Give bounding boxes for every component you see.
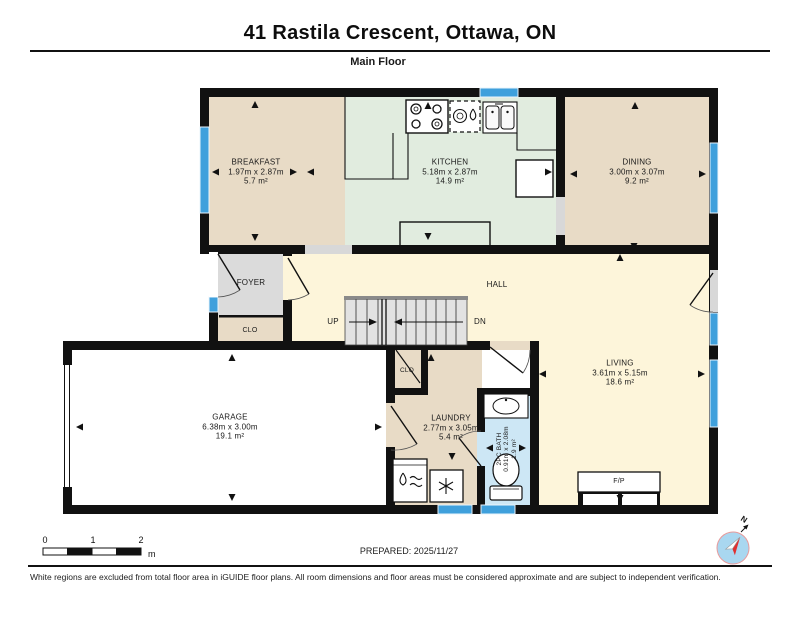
footer-divider bbox=[28, 565, 772, 567]
fireplace-label: F/P bbox=[613, 478, 625, 486]
room-name: DINING bbox=[609, 158, 665, 168]
room-name: LIVING bbox=[592, 359, 648, 369]
footer-disclaimer: White regions are excluded from total fl… bbox=[30, 572, 721, 582]
kitchen-dining-opening bbox=[556, 197, 565, 235]
prepared-date: PREPARED: 2025/11/27 bbox=[360, 546, 458, 556]
room-label-foyer: FOYER bbox=[237, 278, 266, 288]
room-label-foyer-closet: CLO bbox=[243, 327, 258, 335]
room-name: 2PC BATH bbox=[496, 426, 503, 472]
room-dims: 1.97m x 2.87m bbox=[228, 167, 284, 177]
room-name: GARAGE bbox=[202, 413, 258, 423]
dining-window bbox=[710, 143, 718, 213]
room-dims: 5.18m x 2.87m bbox=[422, 167, 478, 177]
room-area: 9.2 m² bbox=[609, 177, 665, 187]
compass-icon bbox=[711, 525, 755, 571]
garage-door bbox=[62, 365, 73, 487]
room-area: 14.9 m² bbox=[422, 177, 478, 187]
room-area: 1.9 m² bbox=[511, 426, 518, 472]
floorplan-page: 41 Rastila Crescent, Ottawa, ON Main Flo… bbox=[0, 0, 800, 618]
kitchen-hall-opening bbox=[305, 245, 352, 254]
double-sink-icon bbox=[483, 102, 517, 133]
room-label-living: LIVING 3.61m x 5.15m 18.6 m² bbox=[592, 359, 648, 388]
room-label-breakfast: BREAKFAST 1.97m x 2.87m 5.7 m² bbox=[228, 158, 284, 187]
scale-tick-0: 0 bbox=[42, 535, 47, 545]
room-label-dining: DINING 3.00m x 3.07m 9.2 m² bbox=[609, 158, 665, 187]
breakfast-window bbox=[200, 127, 209, 213]
scale-tick-2: 2 bbox=[138, 535, 143, 545]
bath-window bbox=[481, 505, 515, 514]
stairs bbox=[344, 296, 468, 345]
stairs-down-label: DN bbox=[474, 317, 486, 327]
kitchen-window bbox=[480, 88, 518, 97]
dryer-icon bbox=[430, 470, 463, 502]
room-dims: 6.38m x 3.00m bbox=[202, 422, 258, 432]
floorplan-svg bbox=[0, 0, 800, 618]
washer-icon bbox=[393, 459, 427, 502]
living-window-lower bbox=[710, 360, 718, 427]
room-label-kitchen: KITCHEN 5.18m x 2.87m 14.9 m² bbox=[422, 158, 478, 187]
room-area: 5.7 m² bbox=[228, 177, 284, 187]
dishwasher-icon bbox=[450, 101, 480, 132]
room-dims: 3.61m x 5.15m bbox=[592, 368, 648, 378]
room-label-hall: HALL bbox=[487, 280, 508, 290]
living-window-upper bbox=[710, 313, 718, 345]
room-name: BREAKFAST bbox=[228, 158, 284, 168]
foyer-window bbox=[209, 297, 218, 312]
scale-unit: m bbox=[148, 549, 156, 559]
hall-laundry-door bbox=[490, 341, 530, 373]
room-label-laundry-closet: CLO bbox=[400, 367, 414, 375]
scale-bar bbox=[43, 548, 141, 555]
scale-tick-1: 1 bbox=[90, 535, 95, 545]
room-name: KITCHEN bbox=[422, 158, 478, 168]
room-dims: 2.77m x 3.05m bbox=[423, 423, 479, 433]
refrigerator-icon bbox=[516, 160, 553, 197]
room-name: LAUNDRY bbox=[423, 414, 479, 424]
room-area: 19.1 m² bbox=[202, 432, 258, 442]
room-dims: 3.00m x 3.07m bbox=[609, 167, 665, 177]
room-area: 18.6 m² bbox=[592, 378, 648, 388]
room-dims: 0.91m x 2.08m bbox=[503, 426, 510, 472]
room-label-bath: 2PC BATH 0.91m x 2.08m 1.9 m² bbox=[496, 426, 518, 472]
stairs-up-label: UP bbox=[327, 317, 339, 327]
room-area: 5.4 m² bbox=[423, 433, 479, 443]
bathroom-sink-icon bbox=[484, 394, 528, 418]
laundry-window bbox=[438, 505, 472, 514]
room-label-laundry: LAUNDRY 2.77m x 3.05m 5.4 m² bbox=[423, 414, 479, 443]
room-label-garage: GARAGE 6.38m x 3.00m 19.1 m² bbox=[202, 413, 258, 442]
